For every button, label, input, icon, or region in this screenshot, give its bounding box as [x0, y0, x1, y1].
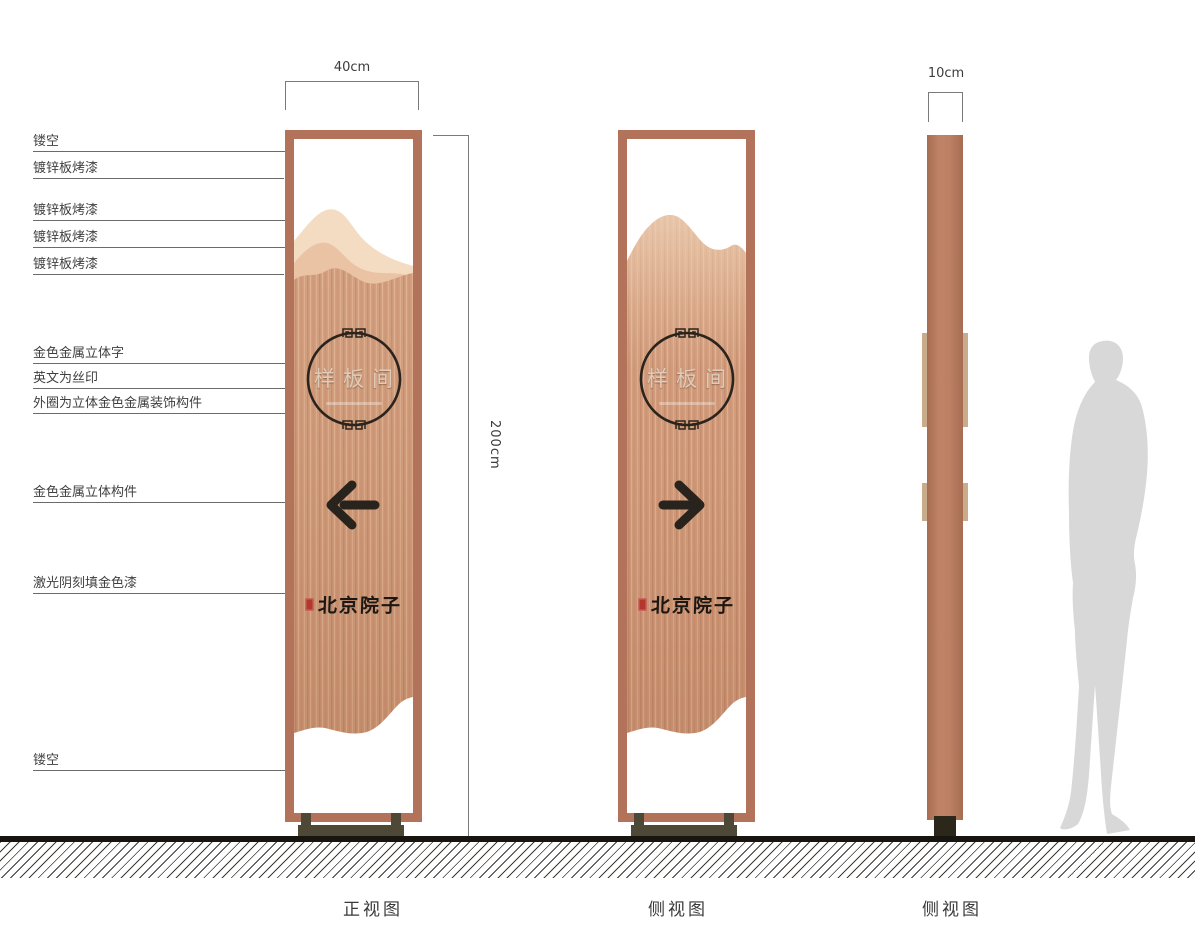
leader-line — [33, 413, 312, 414]
side-a-panel-face: 样板间 北京院子 — [627, 139, 746, 813]
dimension-height-200cm: 200cm — [487, 420, 502, 470]
brand-logo-front: 北京院子 — [294, 591, 413, 618]
caption-side-view-a: 侧视图 — [618, 895, 738, 920]
caption-front-view: 正视图 — [313, 895, 433, 920]
plate-text-side-a: 样板间 — [627, 363, 746, 393]
dimension-depth-10cm: 10cm — [910, 66, 982, 81]
brand-logo-side-a: 北京院子 — [627, 591, 746, 618]
signage-spec-drawing: 镂空 镀锌板烤漆 镀锌板烤漆 镀锌板烤漆 镀锌板烤漆 金色金属立体字 英文为丝印… — [0, 0, 1195, 927]
leader-line — [33, 770, 305, 771]
callout-gold-letters: 金色金属立体字 — [33, 346, 124, 361]
person-silhouette — [1040, 336, 1170, 838]
silkscreen-english-line — [326, 402, 382, 405]
front-panel-face: 样板间 北京院子 — [294, 139, 413, 813]
callout-galvanized-2: 镀锌板烤漆 — [33, 203, 98, 218]
callout-laser-engraving: 激光阴刻填金色漆 — [33, 576, 137, 591]
brand-calligraphy: 北京院子 — [651, 591, 736, 618]
callout-hollow-bottom: 镂空 — [33, 753, 59, 768]
red-seal-icon — [638, 598, 647, 611]
leader-line — [33, 178, 284, 179]
front-panel-artwork — [294, 139, 413, 813]
callout-galvanized-4: 镀锌板烤漆 — [33, 257, 98, 272]
leader-line — [33, 274, 284, 275]
dimension-line-200cm — [468, 135, 469, 838]
callout-galvanized-3: 镀锌板烤漆 — [33, 230, 98, 245]
ground-hatching — [0, 842, 1195, 878]
leader-line — [33, 247, 288, 248]
callout-gold-arrow: 金色金属立体构件 — [33, 485, 137, 500]
side-view-a-panel: 样板间 北京院子 — [618, 130, 755, 822]
callout-gold-ring: 外圈为立体金色金属装饰构件 — [33, 396, 202, 411]
side-b-protrusion-arrow-right — [963, 483, 968, 521]
dimension-tick-200cm — [433, 135, 468, 136]
callout-silkscreen-english: 英文为丝印 — [33, 371, 98, 386]
callout-hollow-top: 镂空 — [33, 134, 59, 149]
dimension-bracket-40cm — [285, 81, 419, 110]
side-b-protrusion-ring-right — [963, 333, 968, 427]
brand-calligraphy: 北京院子 — [318, 591, 403, 618]
caption-side-view-b: 侧视图 — [892, 895, 1012, 920]
silkscreen-english-line — [659, 402, 715, 405]
red-seal-icon — [305, 598, 314, 611]
callout-galvanized-1: 镀锌板烤漆 — [33, 161, 98, 176]
side-view-b-column — [927, 135, 963, 820]
dimension-width-40cm: 40cm — [285, 60, 419, 75]
leader-line — [33, 220, 287, 221]
leader-line — [33, 151, 307, 152]
front-view-panel: 样板间 北京院子 — [285, 130, 422, 822]
plate-text-front: 样板间 — [294, 363, 413, 393]
dimension-bracket-10cm — [928, 92, 963, 122]
side-a-panel-artwork — [627, 139, 746, 813]
